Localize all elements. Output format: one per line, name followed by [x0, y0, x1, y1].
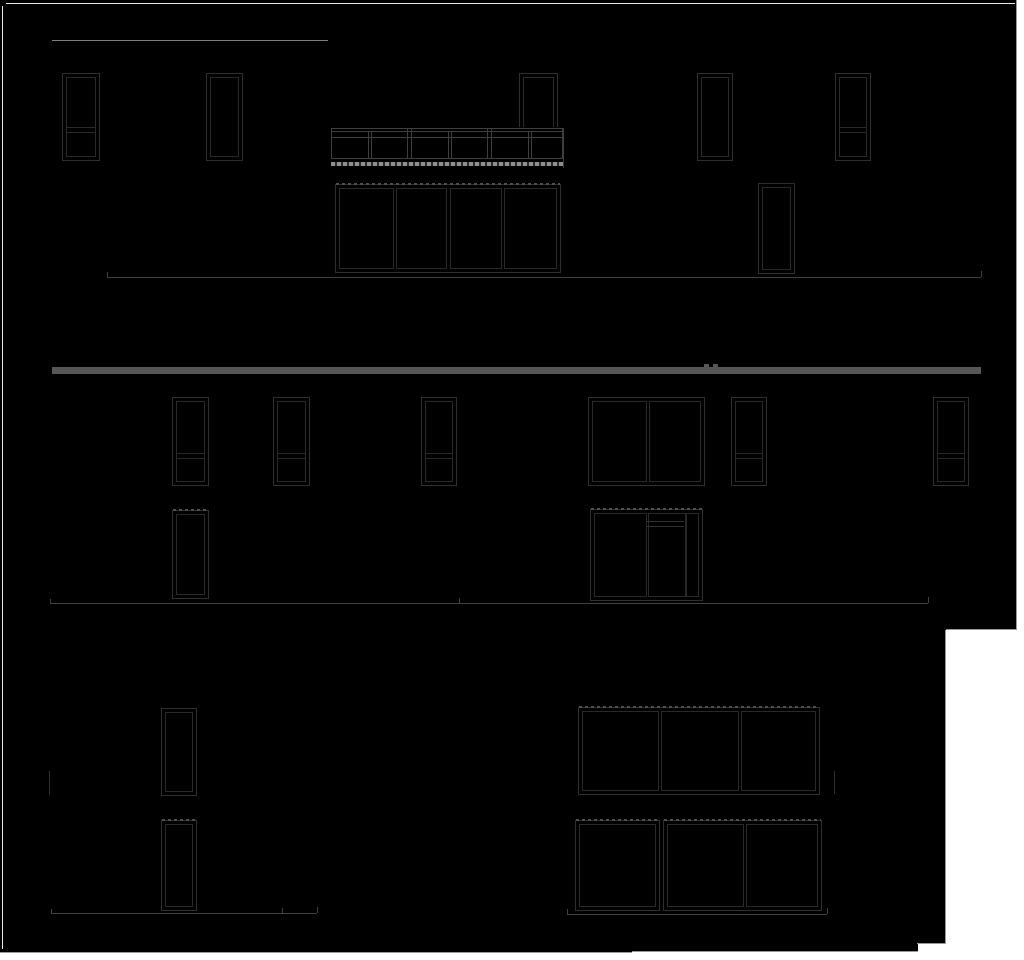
elev1-window-1 [62, 73, 100, 161]
elev3-ground-line-left-tick-1 [51, 909, 52, 913]
sheet-border-left [2, 6, 3, 949]
elev3-ground-line-right-tick-1 [567, 909, 568, 914]
elev2-window-2-inner-frame [277, 401, 306, 482]
elev2-ground-line-tick-1 [50, 599, 51, 603]
elev1-balcony-railing-post-edge-5 [491, 128, 492, 159]
elev2-window-5-inner-frame [937, 401, 965, 482]
elev1-window-4 [835, 73, 871, 161]
elev3-ground-line-left-tick-2 [282, 908, 283, 913]
elev3-wall-mark-left [49, 771, 50, 795]
elev1-balcony-railing-post-mid-b-2 [451, 131, 452, 159]
elev3-ground-line-left-tick-3 [317, 907, 318, 913]
elev1-balcony-railing-end-bracket [563, 128, 564, 168]
elev2-window-4 [731, 397, 767, 486]
elev1-balcony-railing-base-dashes [331, 162, 564, 166]
elev2-entry-combo [590, 509, 703, 601]
elev3-slider-mullion-1 [743, 824, 747, 907]
elev2-window-3-transom [425, 453, 453, 459]
elev2-entry-combo-lintel-hatch [591, 508, 702, 510]
elev1-window-1-inner-frame [66, 77, 96, 157]
elev2-door [172, 510, 209, 599]
elev2-entry-transom-line-2 [647, 526, 684, 527]
elev1-ground-line-tick-2 [981, 271, 982, 277]
elev2-parapet-tab-2 [713, 364, 718, 367]
elev3-triple-window-mullion-1 [658, 711, 662, 791]
elev1-window-1-transom [66, 127, 96, 133]
elev3-window-2 [575, 820, 660, 911]
elev2-window-1-transom [176, 453, 205, 459]
elev2-parapet-bar [52, 367, 981, 374]
elev2-ground-line-tick-2 [459, 598, 460, 603]
elev3-door-inner-frame [165, 824, 193, 907]
elev2-double-window-mullion-1 [646, 401, 650, 482]
elev1-sliding-door [335, 184, 561, 273]
elev2-ground-line [50, 603, 928, 604]
elev3-door [161, 820, 197, 911]
elev3-window-2-lintel-hatch [576, 819, 659, 821]
elev2-window-5-transom [937, 453, 965, 459]
elev1-sliding-door-lintel-hatch [336, 183, 560, 185]
elev1-roof-line [52, 40, 328, 41]
page-edge-bottom-strip [632, 951, 918, 952]
elev1-ground-line [107, 277, 981, 278]
elev2-window-3 [421, 397, 457, 486]
elev1-balcony-railing-post-mid-a-3 [528, 131, 529, 159]
elev2-window-2-transom [277, 453, 306, 459]
elev2-parapet-tab-1 [704, 364, 709, 367]
elev1-window-2-inner-frame [210, 77, 239, 157]
elev2-double-window [588, 397, 705, 486]
elev1-balcony-railing-post-mid-a-1 [368, 131, 369, 159]
elev2-ground-line-tick-3 [928, 597, 929, 603]
elev2-window-2 [273, 397, 310, 486]
elev1-window-4-inner-frame [839, 77, 867, 157]
elev2-window-4-transom [735, 453, 763, 459]
elev1-balcony-railing-post-edge-1 [331, 128, 332, 159]
elev2-door-inner-frame [176, 514, 205, 595]
elev1-window-3-inner-frame [701, 77, 729, 157]
elev1-balcony-railing-post-edge-3 [411, 128, 412, 159]
elev1-door-inner-frame [762, 187, 791, 270]
elev1-window-4-transom [839, 127, 867, 133]
elev3-ground-line-right-tick-2 [827, 908, 828, 914]
page-edge-step [917, 943, 946, 944]
elev3-window-1-inner-frame [165, 712, 193, 792]
elevation-drawing-canvas [0, 0, 1024, 960]
elev3-ground-line-left [51, 913, 317, 914]
elev2-window-1 [172, 397, 209, 486]
elev2-door-lintel-hatch [173, 509, 208, 511]
elev1-sliding-door-mullion-3 [501, 188, 505, 269]
elev3-window-1 [161, 708, 197, 796]
elev3-triple-window-mullion-2 [738, 711, 742, 791]
elev3-wall-mark-right [834, 771, 835, 794]
elev2-entry-combo-mullion-2 [685, 513, 687, 597]
elev2-entry-transom-line-1 [647, 521, 684, 522]
elev1-sliding-door-mullion-1 [393, 188, 397, 269]
elev1-balcony-railing-post-mid-a-2 [448, 131, 449, 159]
elev1-balcony-railing-post-mid-b-3 [531, 131, 532, 159]
elev1-balcony-railing-rail-1 [331, 128, 564, 129]
elev3-window-2-inner-frame [579, 824, 656, 907]
page-edge-bottom-strip2 [0, 952, 632, 953]
page-edge-right-lower [945, 630, 946, 943]
elev3-door-lintel-hatch [162, 819, 196, 821]
elev2-window-4-inner-frame [735, 401, 763, 482]
elev3-slider-lintel-hatch [664, 819, 821, 821]
elev1-door [758, 183, 795, 274]
elev1-sliding-door-mullion-2 [446, 188, 451, 269]
elev3-slider [663, 820, 822, 911]
elev1-balcony-railing-post-mid-b-1 [371, 131, 372, 159]
elev1-window-2 [206, 73, 243, 161]
elev2-window-1-inner-frame [176, 401, 205, 482]
elev1-balcony-railing [331, 127, 564, 168]
elev3-triple-window [578, 707, 820, 795]
elev1-window-3 [697, 73, 733, 161]
elev3-triple-window-lintel-hatch [579, 706, 819, 708]
elev3-ground-line-right [567, 914, 827, 915]
elev1-balcony-railing-post-edge-2 [407, 128, 408, 159]
sheet-border-top [6, 3, 1015, 4]
elev1-ground-line-tick-1 [107, 272, 108, 277]
elev1-balcony-railing-post-edge-4 [487, 128, 488, 159]
page-edge-right-upper [1016, 0, 1017, 630]
page-edge-bottom-upper [946, 629, 1017, 630]
elev2-window-3-inner-frame [425, 401, 453, 482]
elev2-window-5 [933, 397, 969, 486]
elev3-triple-window-inner-frame [582, 711, 816, 791]
